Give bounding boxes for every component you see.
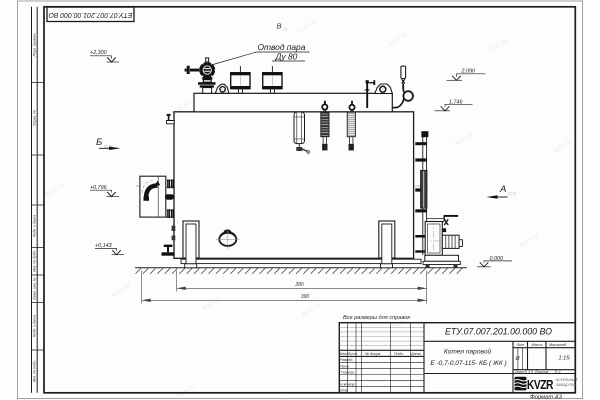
svg-text:ЗАВОД РЭП: ЗАВОД РЭП — [556, 383, 576, 387]
svg-text:390: 390 — [301, 294, 310, 300]
svg-text:Справ. №: Справ. № — [32, 110, 36, 126]
svg-text:Разраб.: Разраб. — [340, 358, 353, 362]
svg-text:В: В — [277, 22, 282, 31]
svg-text:Н.контр.: Н.контр. — [340, 383, 356, 387]
svg-text:Ду 80: Ду 80 — [275, 52, 298, 62]
svg-text:Инв. № подл.: Инв. № подл. — [32, 360, 36, 382]
svg-text:(2): (2) — [283, 28, 287, 32]
svg-text:Подп. и дата: Подп. и дата — [32, 215, 36, 238]
svg-text:Масса: Масса — [532, 343, 543, 347]
svg-text:1: 1 — [528, 370, 530, 374]
svg-text:Лист: Лист — [514, 370, 525, 374]
svg-text:Инв. № дубл.: Инв. № дубл. — [32, 250, 36, 272]
svg-text:280: 280 — [294, 282, 304, 288]
svg-text:Формат А3: Формат А3 — [530, 394, 562, 400]
svg-text:Листов: Листов — [534, 370, 549, 374]
svg-text:А: А — [499, 184, 506, 195]
svg-text:Перв. примен.: Перв. примен. — [32, 33, 36, 57]
svg-text:Дата: Дата — [410, 352, 421, 356]
svg-text:ЕТУ.07.007.201.00.000 ВО: ЕТУ.07.007.201.00.000 ВО — [48, 11, 132, 18]
svg-text:Т.контр.: Т.контр. — [340, 370, 355, 374]
svg-text:Масштаб: Масштаб — [549, 343, 567, 347]
svg-text:2: 2 — [558, 370, 561, 374]
svg-text:KVZR: KVZR — [527, 377, 554, 393]
svg-text:Утв.: Утв. — [340, 389, 348, 393]
svg-text:Пров.: Пров. — [340, 364, 350, 368]
svg-text:Б: Б — [96, 137, 102, 148]
svg-text:Е -0,7-0,07-115- КБ ( ЖК ): Е -0,7-0,07-115- КБ ( ЖК ) — [430, 360, 506, 367]
svg-text:КОТЕЛЬНЫЙ: КОТЕЛЬНЫЙ — [556, 378, 578, 382]
svg-text:Лит.: Лит. — [516, 343, 526, 347]
svg-text:Котел паровой: Котел паровой — [444, 348, 492, 356]
svg-text:(2:1): (2:1) — [508, 191, 517, 196]
svg-text:1:15: 1:15 — [558, 356, 570, 362]
svg-text:Подп. и дата: Подп. и дата — [32, 315, 36, 338]
svg-text:№ докум.: № докум. — [365, 352, 381, 356]
svg-text:Все размеры для справок: Все размеры для справок — [343, 315, 410, 321]
svg-text:+2,300: +2,300 — [90, 50, 107, 56]
svg-text:Изм Лист: Изм Лист — [340, 352, 357, 356]
svg-text:Подп.: Подп. — [394, 352, 404, 356]
svg-text:ЕТУ.07.007.201.00.000 ВО: ЕТУ.07.007.201.00.000 ВО — [445, 327, 552, 337]
svg-text:И: И — [516, 356, 520, 362]
svg-text:Взам. инв. №: Взам. инв. № — [32, 277, 36, 299]
